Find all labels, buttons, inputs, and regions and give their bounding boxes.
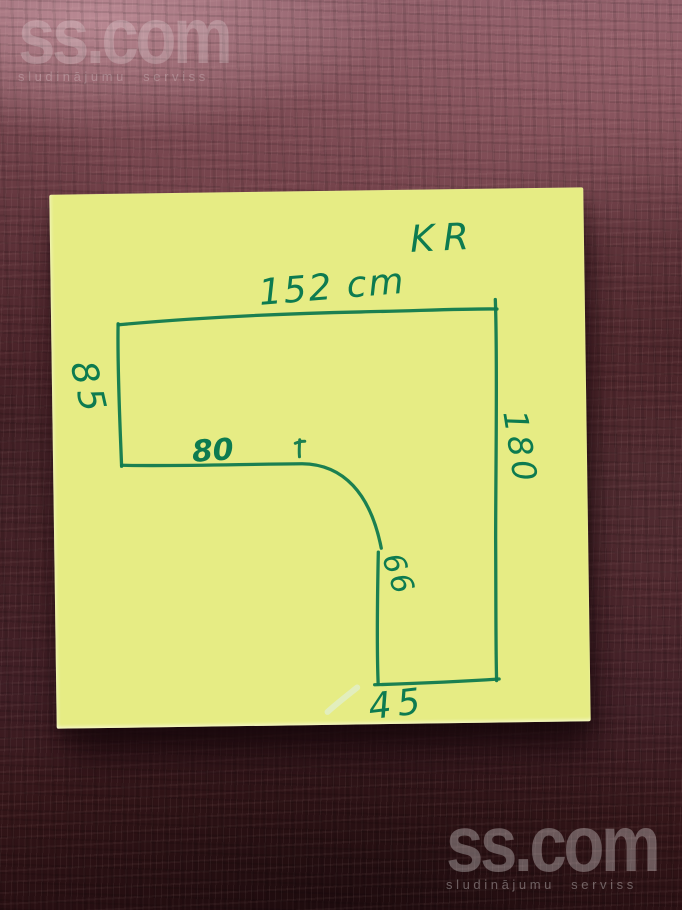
faded-stroke <box>327 688 357 712</box>
sketch-inner-horizontal-curve <box>122 462 382 552</box>
ss-com-logo: ss.com <box>18 7 229 65</box>
tick-mark <box>295 440 305 457</box>
sketch-right-edge <box>491 300 501 681</box>
watermark-top-left: ss.com sludinājumu serviss <box>18 7 270 84</box>
ss-com-tagline: sludinājumu serviss <box>18 69 270 84</box>
sketch-left-edge <box>118 324 122 467</box>
sketch-top-edge <box>118 309 497 325</box>
label-kr: KR <box>409 215 479 261</box>
ss-com-tagline: sludinājumu serviss <box>446 877 682 892</box>
ss-com-logo: ss.com <box>446 815 657 873</box>
label-inner-width: 80 <box>191 432 235 470</box>
photo-canvas: ss.com sludinājumu serviss <box>0 0 682 910</box>
sticky-note: KR 152 cm 85 180 80 66 45 <box>49 187 590 728</box>
label-bottom-width: 45 <box>366 681 428 729</box>
watermark-bottom-right: ss.com sludinājumu serviss <box>446 815 682 892</box>
